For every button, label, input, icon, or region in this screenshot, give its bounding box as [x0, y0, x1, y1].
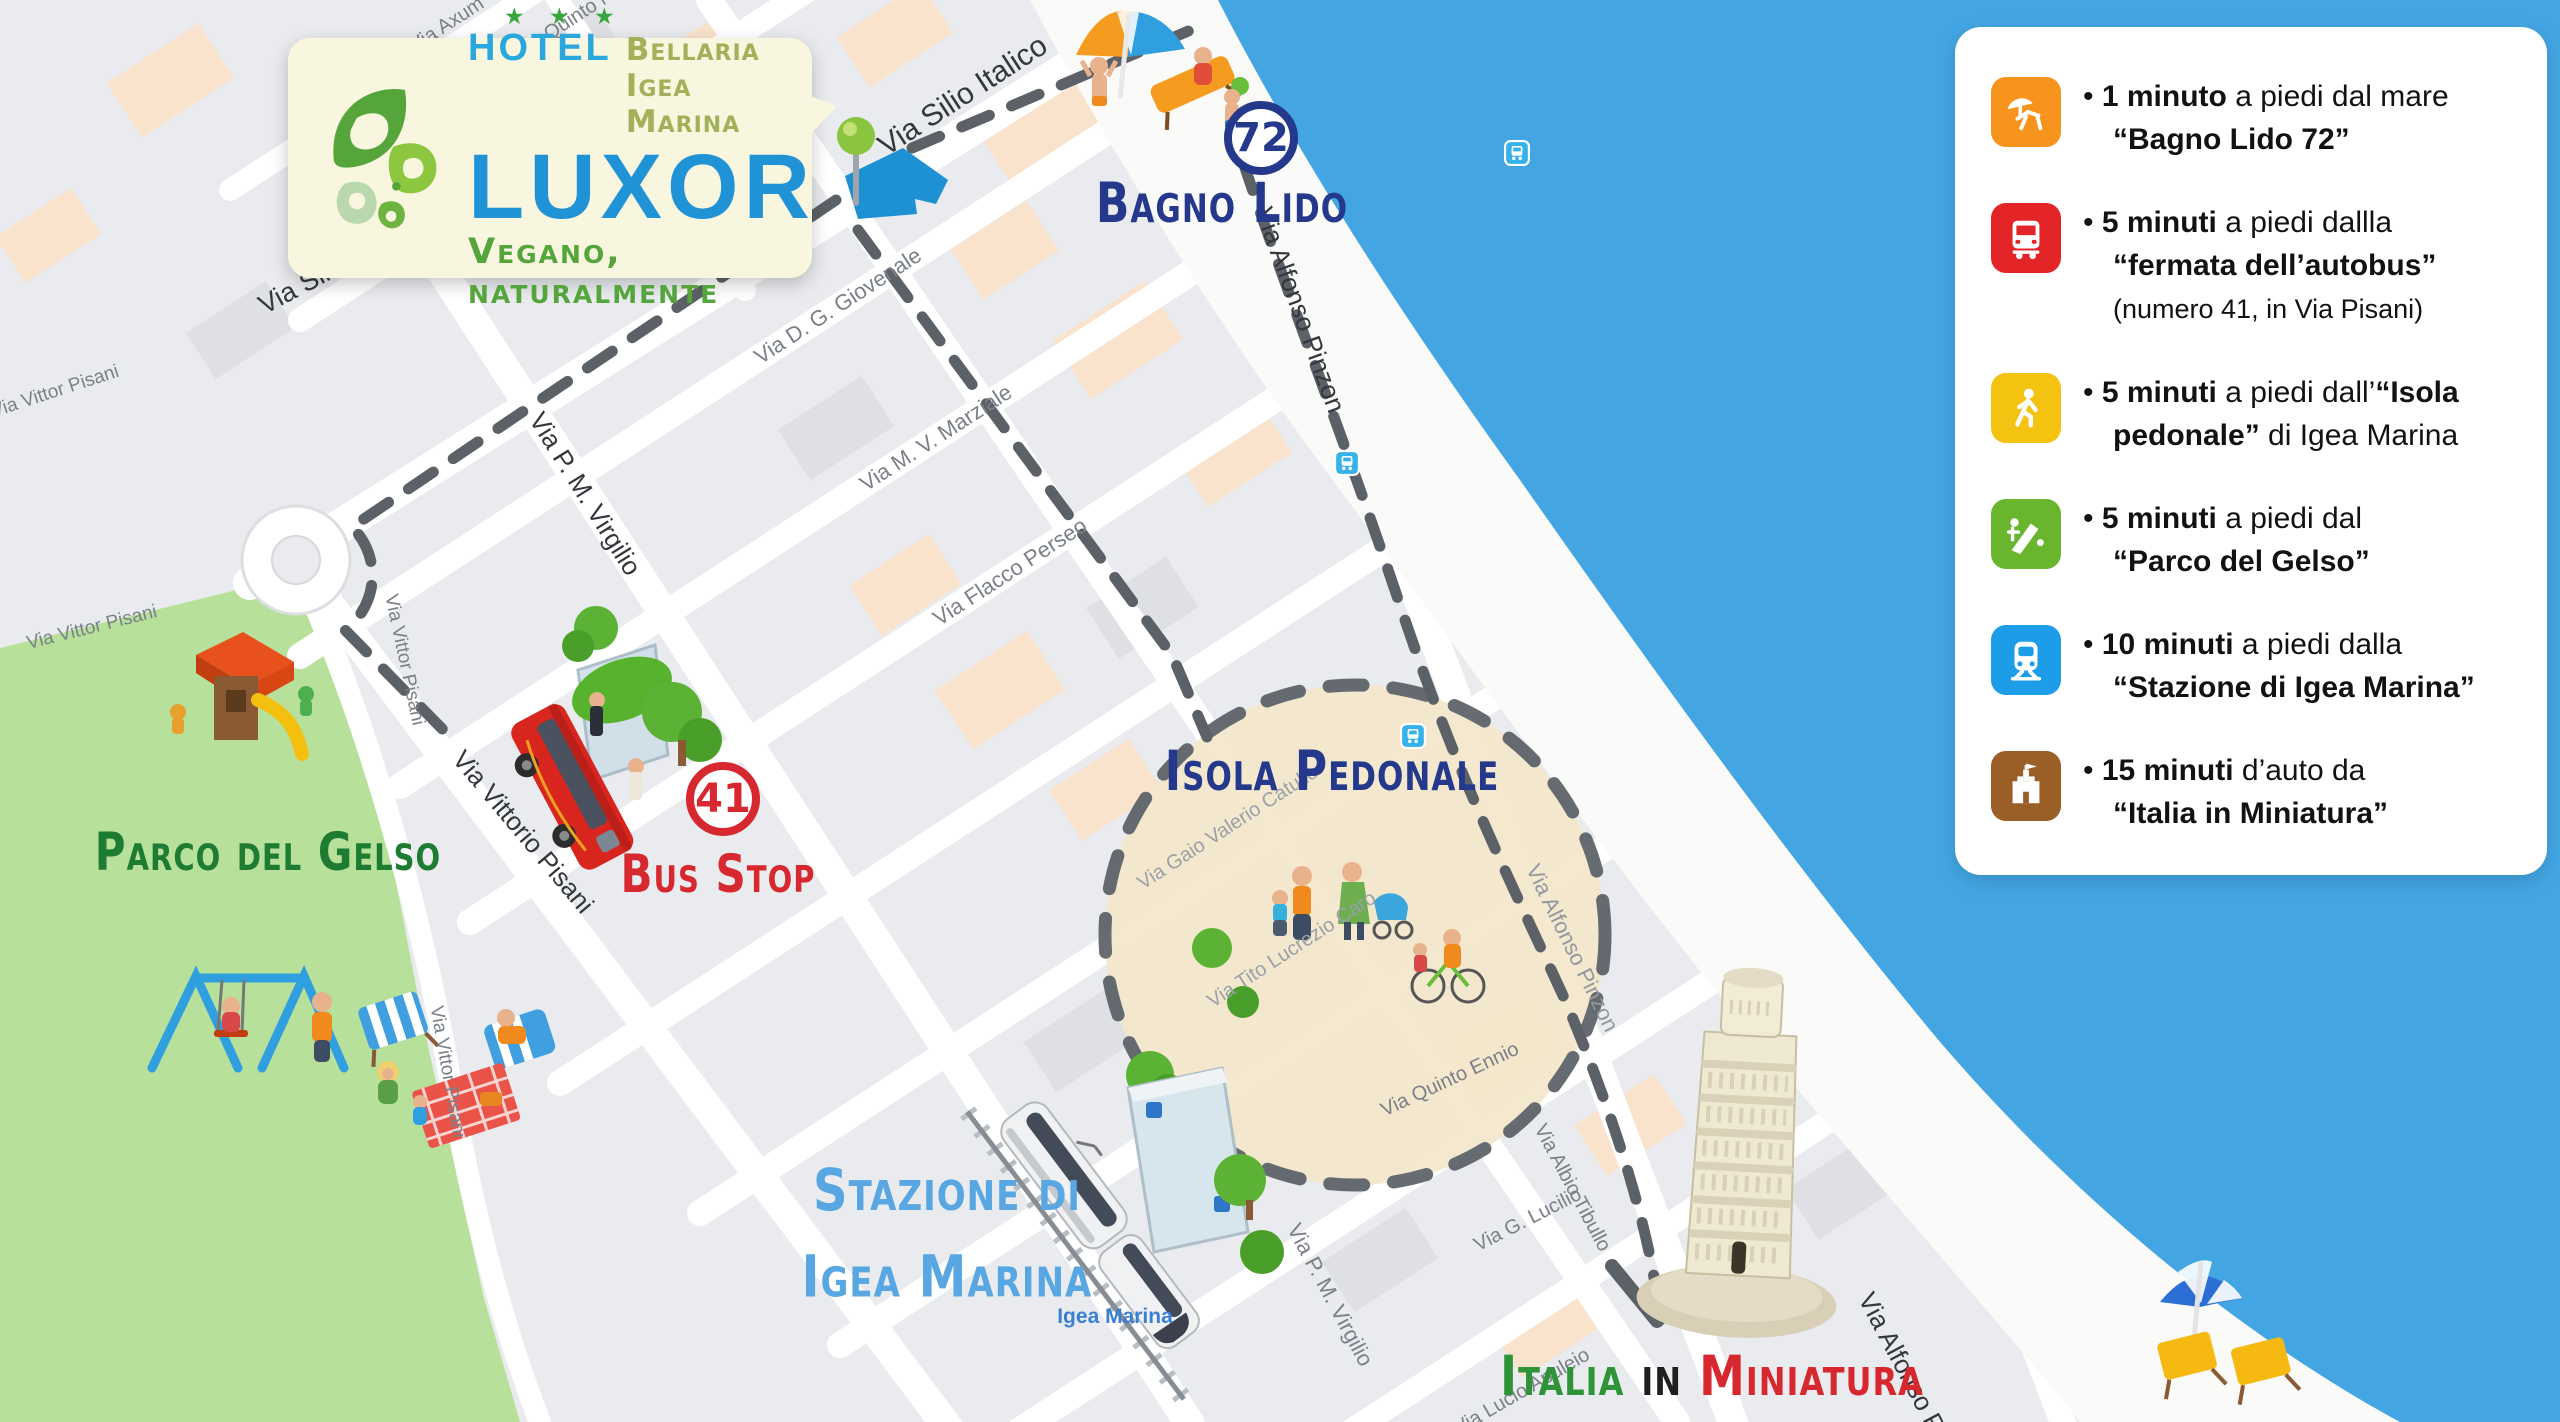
hotel-tagline: Vegano, naturalmente: [468, 232, 815, 312]
parco-del-gelso-label: Parco del Gelso: [95, 821, 441, 882]
bagno-lido-72-badge: 72: [1224, 101, 1298, 175]
street-label-via-flacco: Via Flacco Perseo: [928, 513, 1092, 632]
stazione-label: Stazione di Igea Marina: [802, 1148, 1093, 1321]
bullet: •: [2083, 502, 2094, 535]
legend-item-bus: • 5 minuti a piedi dallla “fermata dell’…: [1991, 201, 2519, 331]
hotel-word: HOTEL: [468, 27, 612, 70]
bullet: •: [2083, 376, 2094, 409]
pedestrian-icon: [1991, 373, 2061, 443]
italia-in-miniatura-label: Italia in Miniatura: [1500, 1344, 1924, 1409]
bagno-lido-label: Bagno Lido: [1096, 172, 1348, 236]
legend-panel: • 1 minuto a piedi dal mare “Bagno Lido …: [1955, 27, 2547, 875]
bullet: •: [2083, 206, 2094, 239]
legend-text: • 1 minuto a piedi dal mare “Bagno Lido …: [2083, 75, 2519, 161]
street-label-via-virgilio: Via P. M. Virgilio: [522, 407, 647, 582]
italia-word-green: Italia: [1500, 1344, 1624, 1409]
street-label-via-vittor-pisani-d: Via Vittor Pisani: [425, 1004, 470, 1139]
castle-icon: [1991, 751, 2061, 821]
street-label-via-pinzon-mid: Via Alfonso Pinzon: [1520, 860, 1624, 1036]
legend-item-castle: • 15 minuti d’auto da “Italia in Miniatu…: [1991, 749, 2519, 835]
legend-item-park: • 5 minuti a piedi dal “Parco del Gelso”: [1991, 497, 2519, 583]
italia-word-black: in: [1641, 1344, 1682, 1409]
playground-icon: [1991, 499, 2061, 569]
bus-41-badge: 41: [686, 762, 760, 836]
street-label-via-ennio: Via Quinto Ennio: [1377, 1038, 1522, 1122]
legend-item-beach: • 1 minuto a piedi dal mare “Bagno Lido …: [1991, 75, 2519, 161]
legend-text: • 5 minuti a piedi dall’“Isola pedonale”…: [2083, 371, 2519, 457]
legend-text: • 5 minuti a piedi dallla “fermata dell’…: [2083, 201, 2519, 331]
bus-stop-label: Bus Stop: [620, 843, 815, 904]
street-label-via-vittor-pisani-c: Via Vittor Pisani: [379, 592, 428, 727]
bus-icon: [1991, 203, 2061, 273]
legend-text: • 15 minuti d’auto da “Italia in Miniatu…: [2083, 749, 2519, 835]
hotel-stars: ★ ★ ★: [468, 5, 815, 27]
map-canvas: Via Axum Via Quinto N Via Silio Italico …: [0, 0, 2560, 1422]
street-label-via-tibullo: Via Albio Tibullo: [1529, 1120, 1615, 1255]
legend-item-train: • 10 minuti a piedi dalla “Stazione di I…: [1991, 623, 2519, 709]
italia-word-red: Miniatura: [1699, 1344, 1924, 1409]
train-icon: [1991, 625, 2061, 695]
street-label-via-vittor-pisani-a: Via Vittor Pisani: [0, 361, 122, 423]
hotel-location: Bellaria Igea Marina: [626, 32, 815, 140]
bullet: •: [2083, 754, 2094, 787]
street-label-via-silio-italico-top: Via Silio Italico: [872, 29, 1054, 163]
stazione-label-line2: Igea Marina: [802, 1234, 1093, 1320]
street-label-via-virgilio-b: Via P. M. Virgilio: [1281, 1219, 1378, 1370]
igea-marina-map-label: Igea Marina: [1057, 1305, 1173, 1329]
bullet: •: [2083, 628, 2094, 661]
beach-umbrella-icon: [1991, 77, 2061, 147]
street-label-via-marziale: Via M. V. Marziale: [855, 379, 1017, 497]
hotel-leaf-logo-icon: [314, 72, 456, 244]
legend-item-pedestrian: • 5 minuti a piedi dall’“Isola pedonale”…: [1991, 371, 2519, 457]
street-label-via-vittor-pisani-b: Via Vittor Pisani: [25, 601, 160, 655]
street-label-via-tito: Via Tito Lucrezio Caro: [1203, 887, 1380, 1013]
street-label-via-vittorio-pisani: Via Vittorio Pisani: [446, 744, 600, 919]
legend-text: • 10 minuti a piedi dalla “Stazione di I…: [2083, 623, 2519, 709]
isola-pedonale-label: Isola Pedonale: [1165, 740, 1500, 804]
stazione-label-line1: Stazione di: [802, 1148, 1093, 1234]
legend-text: • 5 minuti a piedi dal “Parco del Gelso”: [2083, 497, 2519, 583]
bullet: •: [2083, 80, 2094, 113]
hotel-logo-card: ★ ★ ★ HOTEL Bellaria Igea Marina LUXOR V…: [288, 38, 812, 278]
hotel-name: LUXOR: [468, 142, 815, 232]
